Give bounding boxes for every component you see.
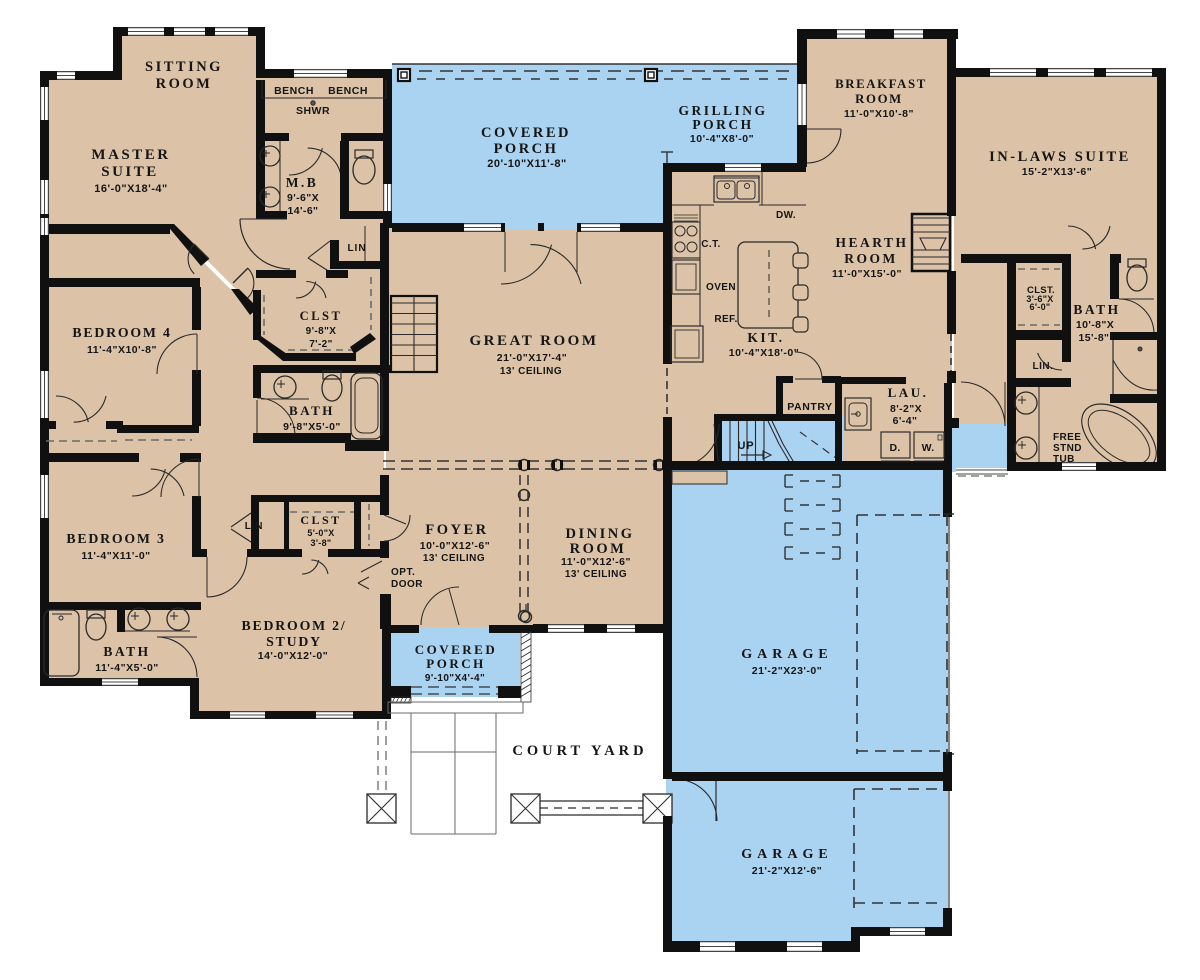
svg-text:13' CEILING: 13' CEILING [500,366,562,377]
svg-text:HEARTH: HEARTH [835,235,908,250]
svg-text:BEDROOM 2/: BEDROOM 2/ [242,618,347,633]
svg-text:9'-8"X: 9'-8"X [306,326,337,337]
svg-text:FOYER: FOYER [425,522,488,538]
svg-text:PORCH: PORCH [494,141,559,157]
svg-text:ROOM: ROOM [570,541,627,557]
svg-text:GREAT ROOM: GREAT ROOM [469,333,598,349]
svg-text:KIT.: KIT. [747,330,784,345]
svg-text:21'-2"X23'-0": 21'-2"X23'-0" [752,665,822,677]
svg-text:LIN: LIN [347,243,366,254]
svg-text:13' CEILING: 13' CEILING [423,553,485,564]
svg-text:11'-0"X12'-6": 11'-0"X12'-6" [561,556,631,568]
svg-text:9'-8"X5'-0": 9'-8"X5'-0" [283,421,341,433]
svg-text:COURT YARD: COURT YARD [512,743,647,759]
svg-text:11'-4"X5'-0": 11'-4"X5'-0" [95,662,159,674]
svg-text:10'-4"X8'-0": 10'-4"X8'-0" [690,133,754,145]
svg-text:21'-2"X12'-6": 21'-2"X12'-6" [752,865,822,877]
svg-text:W.: W. [922,442,935,454]
svg-text:11'-0"X15'-0": 11'-0"X15'-0" [832,268,902,280]
svg-text:STND: STND [1053,443,1082,454]
svg-text:DINING: DINING [566,526,635,542]
svg-text:10'-0"X12'-6": 10'-0"X12'-6" [420,540,490,552]
svg-text:14'-0"X12'-0": 14'-0"X12'-0" [258,650,328,662]
svg-text:COVERED: COVERED [415,642,498,657]
svg-text:11'-4"X11'-0": 11'-4"X11'-0" [81,550,150,562]
svg-text:DOOR: DOOR [391,579,423,590]
svg-text:10'-4"X18'-0": 10'-4"X18'-0" [729,347,799,359]
svg-text:15'-2"X13'-6": 15'-2"X13'-6" [1022,166,1092,178]
svg-text:BATH: BATH [289,403,335,418]
svg-text:REF.: REF. [714,314,737,325]
svg-text:GARAGE: GARAGE [741,847,832,862]
svg-text:IN-LAWS SUITE: IN-LAWS SUITE [989,149,1131,165]
svg-text:PANTRY: PANTRY [787,401,833,413]
svg-text:8'-2"X: 8'-2"X [890,403,922,415]
svg-text:GARAGE: GARAGE [741,647,832,662]
svg-text:ROOM: ROOM [855,92,903,106]
svg-text:9'-10"X4'-4": 9'-10"X4'-4" [425,673,485,684]
svg-text:6'-0": 6'-0" [1030,302,1051,312]
svg-text:LIN.: LIN. [1033,361,1054,372]
svg-text:D.: D. [889,442,900,454]
svg-text:STUDY: STUDY [266,634,322,649]
svg-text:SUITE: SUITE [101,164,159,180]
svg-text:BEDROOM 4: BEDROOM 4 [72,325,171,340]
svg-text:LAU.: LAU. [888,385,929,400]
svg-text:6'-4": 6'-4" [893,415,918,427]
svg-text:PORCH: PORCH [692,117,753,132]
svg-text:SITTING: SITTING [145,59,223,75]
svg-text:CLST: CLST [300,513,341,527]
svg-text:BENCH: BENCH [274,85,314,97]
svg-text:BEDROOM 3: BEDROOM 3 [66,531,165,546]
svg-text:ROOM: ROOM [844,251,898,266]
svg-text:21'-0"X17'-4": 21'-0"X17'-4" [497,352,567,364]
svg-text:OPT.: OPT. [391,567,415,578]
svg-text:5'-0"X: 5'-0"X [307,528,334,538]
svg-text:M.B: M.B [286,175,319,190]
svg-text:C.T.: C.T. [701,239,720,250]
svg-text:7'-2": 7'-2" [309,339,333,350]
svg-text:ROOM: ROOM [156,76,213,92]
svg-text:13' CEILING: 13' CEILING [565,569,627,580]
svg-text:11'-0"X10'-8": 11'-0"X10'-8" [844,108,914,120]
svg-text:COVERED: COVERED [481,125,571,141]
svg-text:CLST: CLST [300,309,343,323]
svg-text:UP: UP [738,440,755,452]
svg-text:3'-8": 3'-8" [311,538,332,548]
svg-text:MASTER: MASTER [91,147,170,163]
svg-text:DW.: DW. [776,210,796,221]
svg-text:16'-0"X18'-4": 16'-0"X18'-4" [94,183,168,195]
svg-text:GRILLING: GRILLING [678,103,767,118]
svg-text:PORCH: PORCH [426,656,485,671]
svg-text:11'-4"X10'-8": 11'-4"X10'-8" [87,344,157,356]
svg-text:15'-8": 15'-8" [1079,332,1110,344]
svg-text:20'-10"X11'-8": 20'-10"X11'-8" [487,158,567,170]
svg-text:LIN: LIN [245,521,264,532]
svg-text:BATH: BATH [1073,302,1120,317]
svg-text:BREAKFAST: BREAKFAST [835,77,927,91]
svg-text:14'-6": 14'-6" [288,205,319,217]
svg-text:9'-6"X: 9'-6"X [287,192,319,204]
svg-text:SHWR: SHWR [296,105,330,117]
svg-text:10'-8"X: 10'-8"X [1076,319,1114,331]
svg-text:BENCH: BENCH [328,85,368,97]
svg-text:BATH: BATH [103,644,150,659]
svg-text:OVEN: OVEN [706,282,736,293]
svg-text:FREE: FREE [1053,432,1081,443]
